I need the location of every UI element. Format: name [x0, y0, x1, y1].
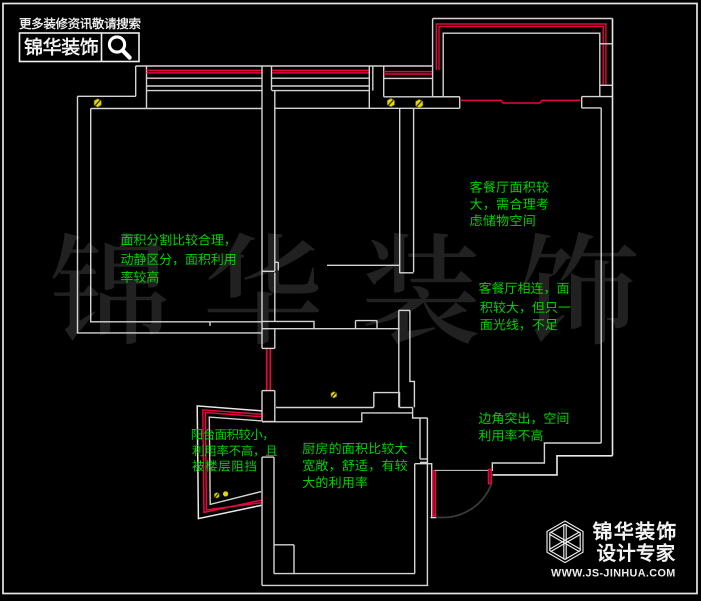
svg-text:WWW.JS-JINHUA.COM: WWW.JS-JINHUA.COM	[551, 567, 676, 579]
